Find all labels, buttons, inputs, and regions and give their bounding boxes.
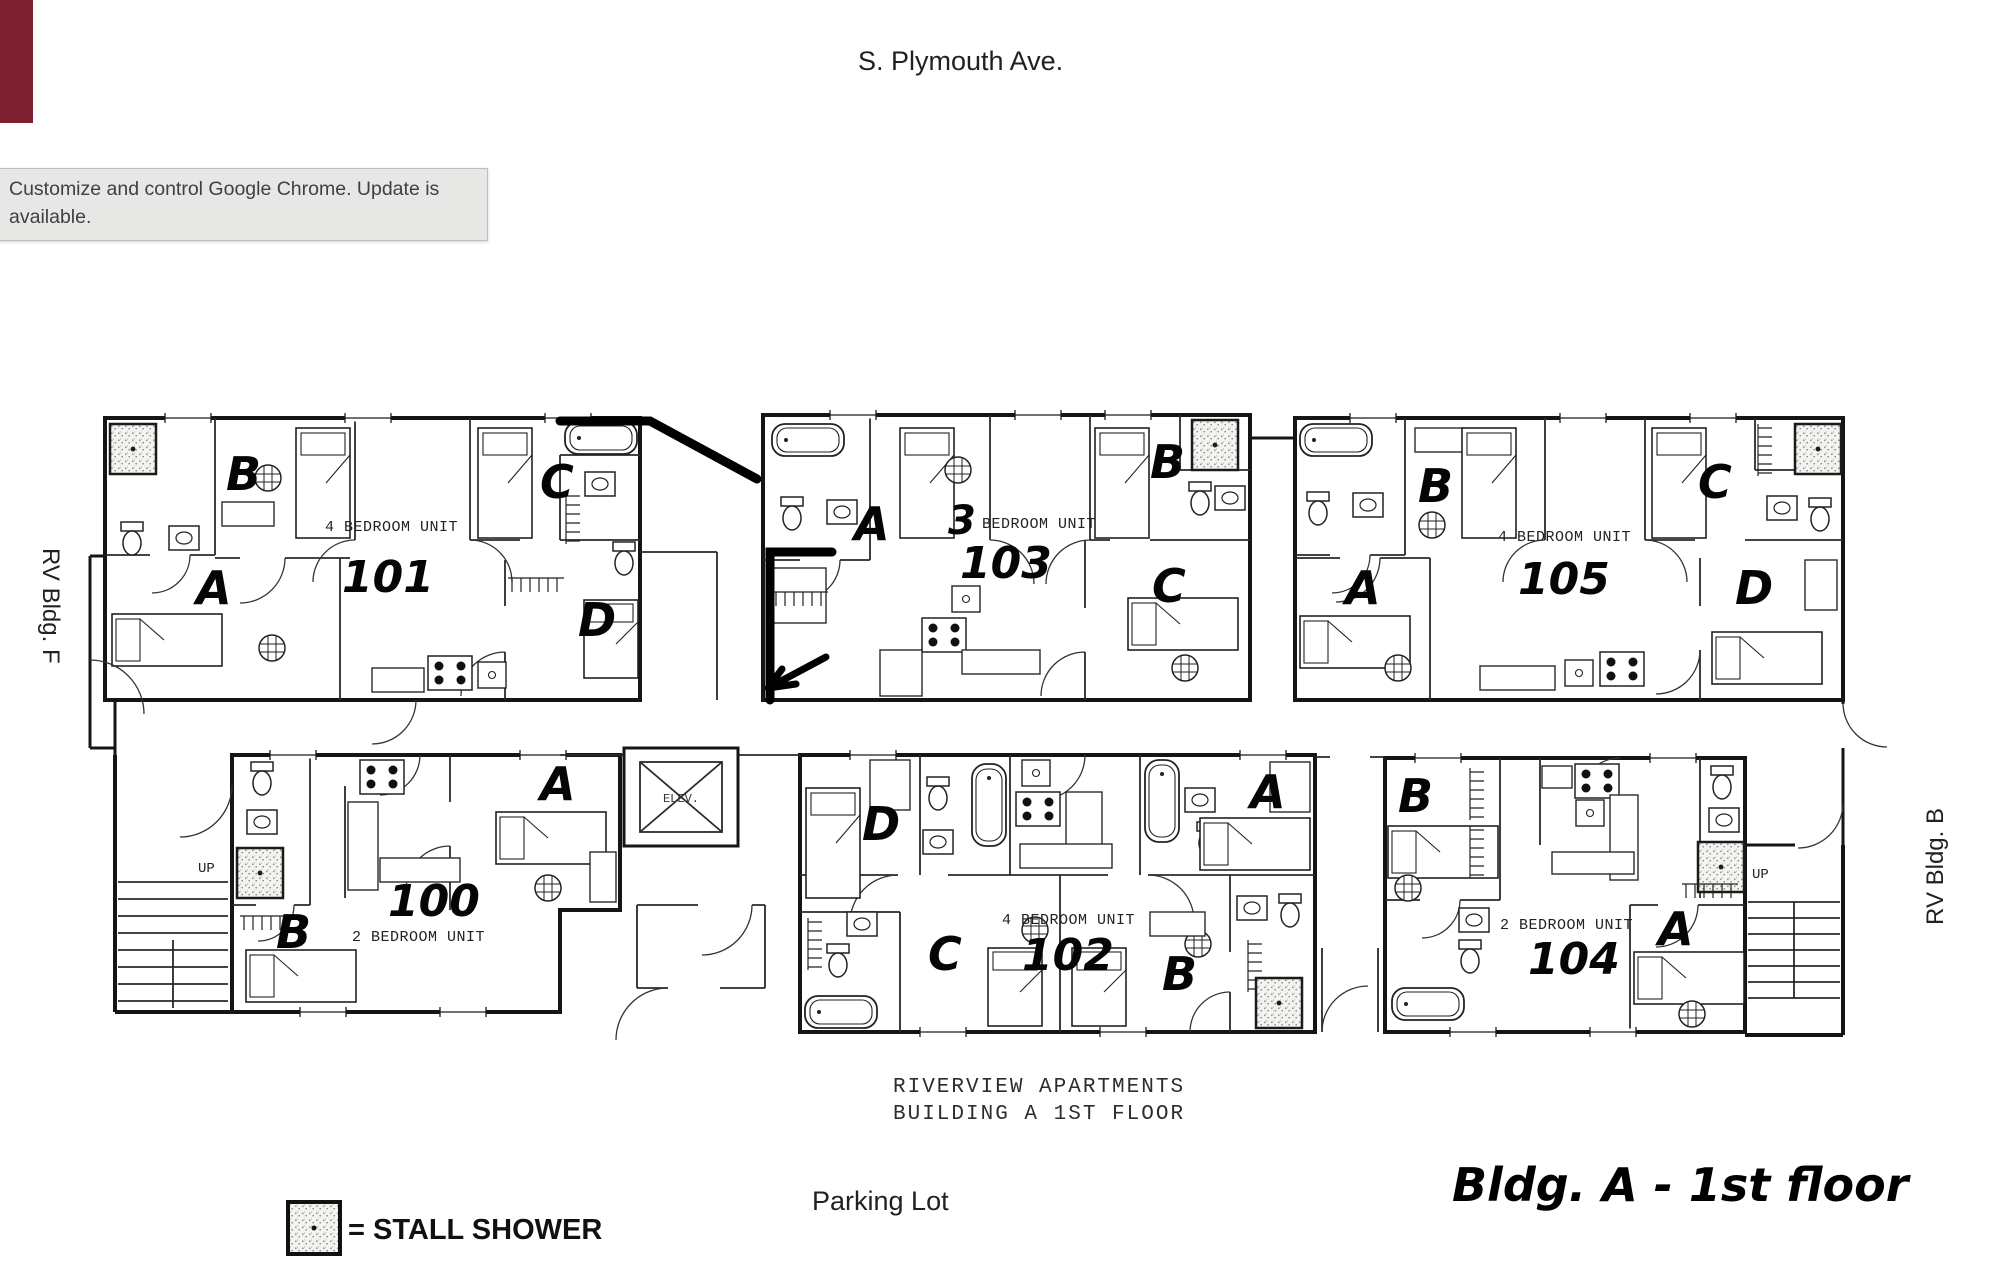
sink-icon [1185,788,1215,812]
bathtub-icon [1145,760,1179,842]
sink-icon [827,500,857,524]
window [165,413,211,423]
south-vestibule-walls [637,905,765,988]
window [1350,413,1396,423]
unit-number: 102 [1022,930,1114,981]
toilet-icon [251,762,273,795]
room-label: C [540,455,574,509]
dresser [222,502,274,526]
sink-icon [1709,808,1739,832]
range-icon [1575,764,1619,798]
unit-102: 4 BEDROOM UNIT 102 A B C D [800,750,1315,1037]
west-entry-door [90,660,144,714]
sink-icon [923,830,953,854]
stool-icon [1385,655,1411,681]
toilet-icon [1307,492,1329,525]
bed-icon [1200,818,1310,870]
toilet-icon [781,497,803,530]
room-label: B [1162,947,1197,1001]
south-vestibule [616,905,765,1040]
window [1240,750,1286,760]
room-label: B [1150,435,1185,489]
room-label: A [193,561,232,615]
unit-100: 100 2 BEDROOM UNIT A B [232,750,620,1017]
room-label: D [578,593,616,647]
room-label: A [1342,561,1381,615]
sink-icon [1353,493,1383,517]
unit-number: 104 [1528,934,1620,985]
room-label: B [1418,459,1453,513]
unit-number: 101 [342,552,434,603]
sink-icon [247,810,277,834]
kitchen-sink-icon [478,662,506,688]
stall-shower-icon [237,848,283,898]
unit-type-label: 4 BEDROOM UNIT [325,519,458,536]
unit-104: 2 BEDROOM UNIT 104 A B [1385,753,1745,1037]
window [1450,1027,1496,1037]
plan-title-line1: RIVERVIEW APARTMENTS [893,1076,1185,1099]
bathtub-icon [772,424,844,456]
room-label: B [1398,769,1433,823]
closet-icon [508,578,564,592]
room-label: A [1655,902,1694,956]
window [1690,413,1736,423]
stairs-up-label: UP [198,861,215,877]
counter [1480,666,1555,690]
counter [372,668,424,692]
unit-type-label: 4 BEDROOM UNIT [1002,912,1135,929]
window [345,413,391,423]
room-label: B [276,905,311,959]
toilet-icon [1711,766,1733,799]
sink-icon [847,912,877,936]
sink-icon [169,526,199,550]
stool-icon [1172,655,1198,681]
toilet-icon [1279,894,1301,927]
stall-shower-icon [110,424,156,474]
toilet-icon [1459,940,1481,973]
toilet-icon [1189,482,1211,515]
counter [1020,844,1112,868]
handwritten-arrow [768,657,826,688]
dresser [1150,912,1205,936]
unit-type-label: 2 BEDROOM UNIT [352,929,485,946]
room-label: D [862,797,900,851]
stall-shower-icon [1192,420,1238,470]
sink-icon [1237,896,1267,920]
unit-type-label: BEDROOM UNIT [982,516,1096,533]
window [440,1007,486,1017]
bed-icon [1462,428,1516,538]
bed-icon [1388,826,1498,878]
elevator: ELEV. [624,748,738,846]
window [920,1027,966,1037]
stairs-treads [1748,902,1840,998]
room-label: D [1735,561,1773,615]
room-label: B [226,447,261,501]
room-label: A [851,497,890,551]
bed-icon [1095,428,1149,538]
bed-icon [806,788,860,898]
window [850,750,896,760]
kitchen-sink-icon [1022,760,1050,786]
stairwell-left: UP [115,755,232,1012]
page: S. Plymouth Ave. Customize and control G… [0,0,2000,1278]
counter [880,650,922,696]
stool-icon [259,635,285,661]
closet-icon [1470,768,1484,820]
bed-icon [900,428,954,538]
sink-icon [1215,486,1245,510]
toilet-icon [613,542,635,575]
unit-103: 3 BEDROOM UNIT 103 A B C [763,410,1250,700]
room-label: C [928,927,962,981]
stall-shower-icon [1256,978,1302,1028]
floor-plan-canvas: 4 BEDROOM UNIT 101 A B C D [0,0,2000,1278]
window [270,750,316,760]
legend-swatch-dot [312,1226,317,1231]
bed-icon [112,614,222,666]
stool-icon [535,875,561,901]
stairwell-right-door [1798,803,1843,848]
room-label: C [1698,455,1732,509]
stall-shower-icon [1795,424,1841,474]
window [1560,413,1606,423]
stool-icon [1419,512,1445,538]
toilet-icon [927,777,949,810]
plan-title-line2: BUILDING A 1ST FLOOR [893,1103,1185,1126]
bathtub-icon [972,764,1006,846]
counter [962,650,1040,674]
stairs-treads [118,882,228,1008]
connector-101-103 [640,552,717,700]
dresser [1415,428,1463,452]
bed-icon [1712,632,1822,684]
window [1415,753,1461,763]
kitchen-sink-icon [1576,800,1604,826]
sink-icon [1767,496,1797,520]
unit-type-label: 4 BEDROOM UNIT [1498,529,1631,546]
desk [590,852,616,902]
stool-icon [1679,1001,1705,1027]
legend [288,1202,340,1254]
window [1650,753,1696,763]
counter [1552,852,1634,874]
window [1105,410,1151,420]
unit-101: 4 BEDROOM UNIT 101 A B C D [105,413,640,744]
title-block: RIVERVIEW APARTMENTS BUILDING A 1ST FLOO… [893,1076,1185,1126]
window [830,410,876,420]
stairwell-left-door [180,785,232,837]
stairs-up-label: UP [1752,867,1769,883]
range-icon [360,760,404,794]
east-entry-door [1843,703,1887,747]
desk [1805,560,1837,610]
toilet-icon [1809,498,1831,531]
kitchen-sink-icon [1565,660,1593,686]
bathtub-icon [805,996,877,1028]
south-entry-door [1322,986,1368,1032]
range-icon [1600,652,1644,686]
window [1100,1027,1146,1037]
bathtub-icon [1300,424,1372,456]
bed-icon [478,428,532,538]
unit-105: 4 BEDROOM UNIT 105 A B C D [1295,413,1843,700]
room-label: C [1152,559,1186,613]
range-icon [1016,792,1060,826]
bathtub-icon [1392,988,1464,1020]
bed-icon [1634,952,1744,1004]
range-icon [922,618,966,652]
counter [348,802,378,890]
toilet-icon [121,522,143,555]
south-entry-102-104 [1315,757,1385,1032]
window [1590,1027,1636,1037]
elevator-label: ELEV. [663,792,699,806]
closet-icon [1758,424,1772,476]
stool-icon [945,457,971,483]
toilet-icon [827,944,849,977]
closet-icon [808,918,822,970]
unit-number: 100 [388,876,480,927]
sink-icon [585,472,615,496]
room-label: A [537,757,576,811]
unit-number: 103 [960,538,1052,589]
kitchen-sink-icon [952,586,980,612]
closet [768,568,826,623]
stool-icon [1395,875,1421,901]
window [1015,410,1061,420]
room-label: A [1247,765,1286,819]
unit-number: 105 [1518,554,1610,605]
window [300,1007,346,1017]
bathtub-icon [565,422,637,454]
sink-icon [1459,908,1489,932]
unit-type-label: 2 BEDROOM UNIT [1500,917,1633,934]
counter [1542,766,1572,788]
range-icon [428,656,472,690]
stairwell-right: UP [1745,803,1843,1035]
